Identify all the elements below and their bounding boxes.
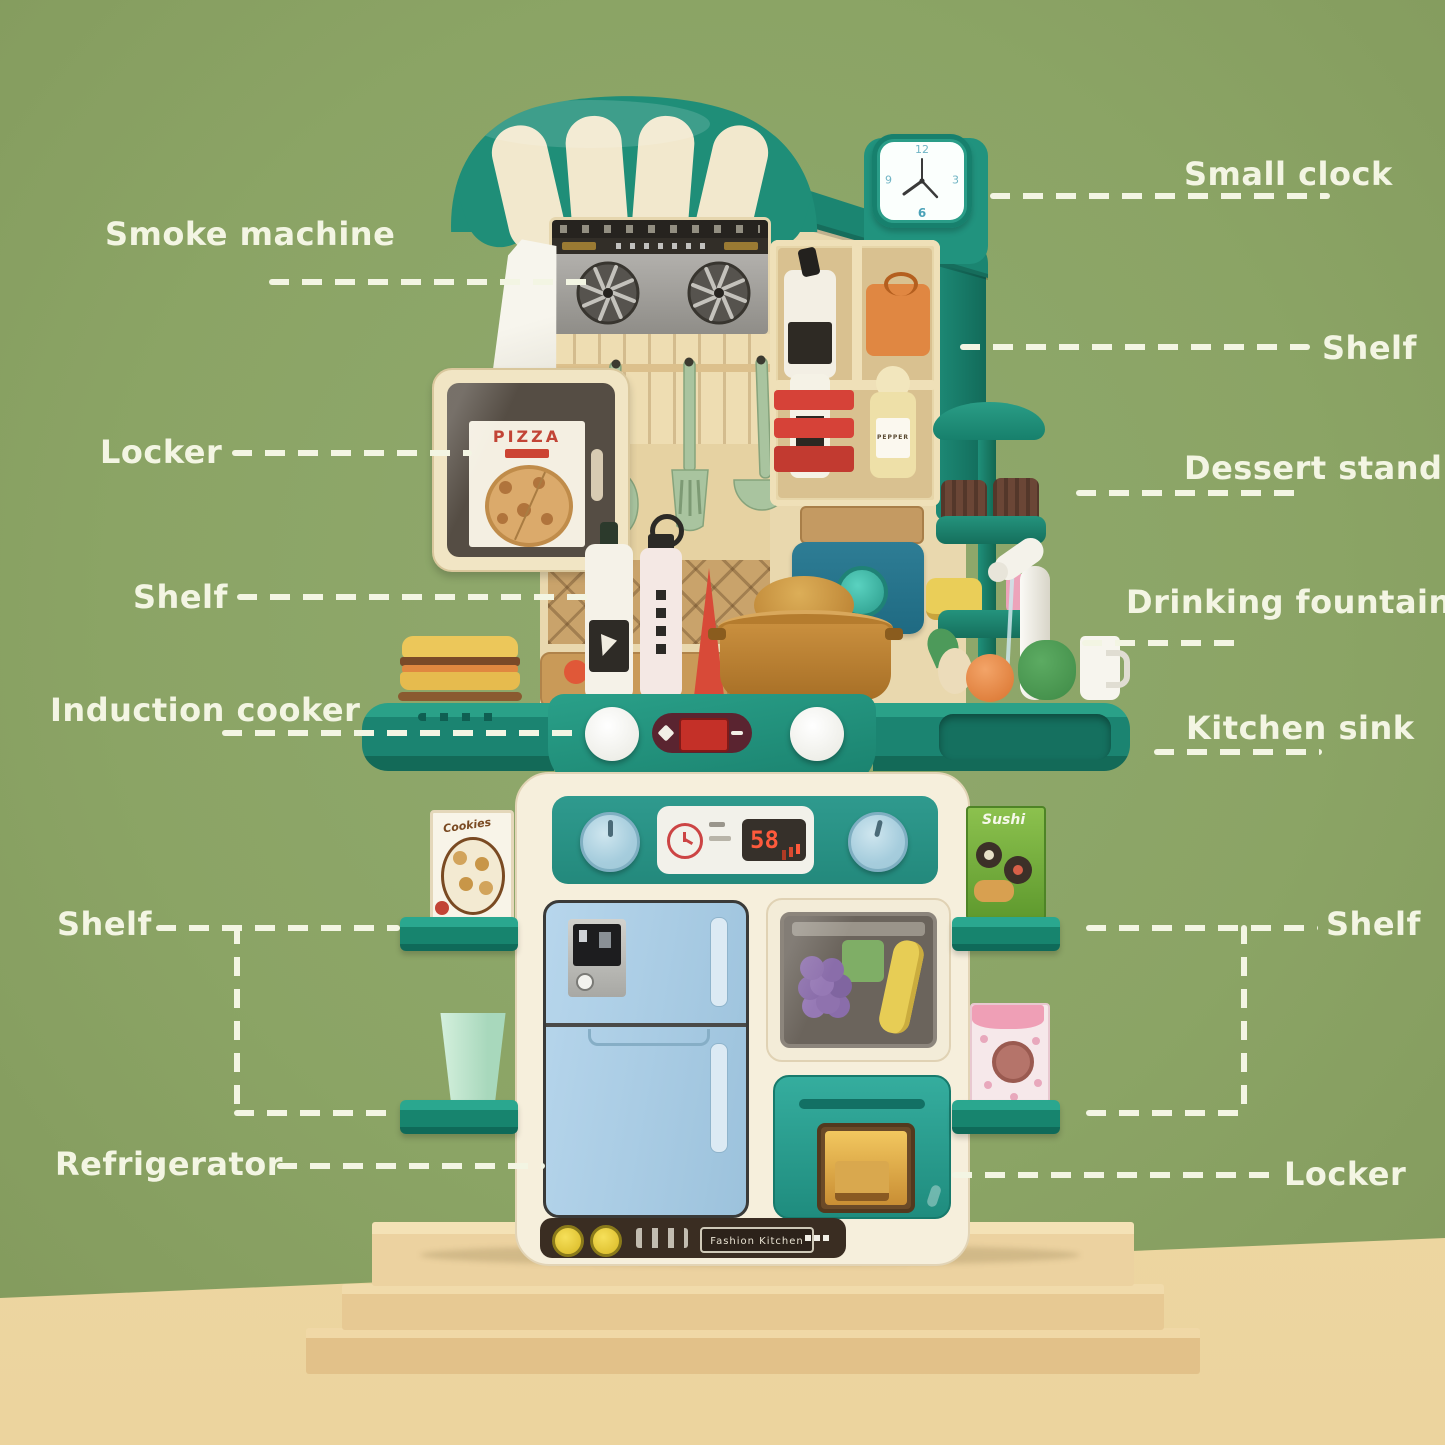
clock-hands: [880, 142, 964, 220]
leader-dessert-stand: [1076, 490, 1304, 496]
label-smoke-machine: Smoke machine: [105, 216, 395, 253]
fountain-nozzle: [988, 562, 1008, 582]
menu-dots: [814, 1235, 820, 1241]
leader-induction-cooker: [222, 730, 584, 736]
leader-kitchen-sink: [1154, 749, 1322, 755]
toy-sandwich: [398, 634, 522, 704]
spatula-handle: [684, 360, 695, 472]
right-shelf-upper: [952, 917, 1060, 951]
fruit-window-cabinet: [766, 898, 951, 1062]
stove-knob-left: [585, 707, 639, 761]
yellow-button: [552, 1225, 584, 1257]
stand-pole: [978, 430, 996, 692]
leader-refrigerator: [277, 1163, 545, 1169]
toast-in-oven: [835, 1161, 889, 1201]
smoke-machine-hood: [552, 220, 768, 334]
pedestal-step-bottom: [306, 1328, 1200, 1374]
leader-shelf-bottom-right-h2: [1086, 1110, 1247, 1116]
fridge-door-split: [546, 1023, 746, 1027]
refrigerator: [543, 900, 749, 1218]
control-center-panel: 58: [657, 806, 814, 874]
sushi-card-title: Sushi: [982, 812, 1025, 828]
sushi-card: Sushi: [966, 806, 1046, 920]
label-shelf-mid-left: Shelf: [133, 579, 228, 616]
orange-bag: [866, 284, 930, 356]
shelf-divider-v: [852, 244, 862, 384]
clock-face: 12 3 6 9: [880, 142, 964, 220]
pink-snack-box: [970, 1003, 1050, 1105]
fridge-control-panel: [568, 919, 626, 997]
sink-basin: [939, 714, 1111, 760]
oil-bottle: [784, 270, 836, 378]
fridge-handle-top: [710, 917, 728, 1007]
hood-control-bar: [552, 238, 768, 254]
leader-shelf-mid-left: [237, 594, 588, 600]
leader-small-clock: [990, 193, 1330, 199]
label-drinking-fountain: Drinking fountain: [1126, 584, 1445, 621]
label-locker-left: Locker: [100, 434, 222, 471]
hood-fans: [552, 254, 768, 334]
wall-cabinet-small: [800, 506, 924, 544]
cookies-card-title: Cookies: [442, 816, 492, 836]
label-induction-cooker: Induction cooker: [50, 692, 360, 729]
product-infographic: 12 3 6 9: [0, 0, 1445, 1445]
control-knob-left: [580, 812, 640, 872]
pepper-bottle: PEPPER: [868, 366, 918, 478]
pedestal-step-middle: [342, 1284, 1164, 1330]
left-shelf-lower: [400, 1100, 518, 1134]
oven-control-bar: 58: [552, 796, 938, 884]
timer-clock-icon: [667, 823, 703, 859]
left-shelf-upper: [400, 917, 518, 951]
hood-fan-panel: [552, 254, 768, 334]
red-basket-bar: [774, 418, 854, 438]
leader-shelf-bottom-left-h2: [234, 1110, 398, 1116]
leader-smoke-machine: [269, 279, 592, 285]
locker-glass-glare: [447, 383, 615, 557]
control-knob-right: [848, 812, 908, 872]
sauce-bottle-pink: [640, 528, 682, 698]
window-glass: [780, 912, 937, 1048]
stove-display: [652, 713, 752, 753]
label-refrigerator: Refrigerator: [55, 1146, 283, 1183]
label-kitchen-sink: Kitchen sink: [1186, 710, 1415, 747]
label-locker-bottom-right: Locker: [1284, 1156, 1406, 1193]
counter-right-wing-kitchen-sink: [873, 703, 1130, 771]
leader-shelf-bottom-left-h1: [156, 925, 400, 931]
label-shelf-bottom-left: Shelf: [57, 906, 152, 943]
red-basket: [774, 390, 854, 410]
yellow-button: [590, 1225, 622, 1257]
label-shelf-bottom-right: Shelf: [1326, 906, 1421, 943]
leader-shelf-top-right: [960, 344, 1310, 350]
leader-shelf-bottom-right-v: [1241, 925, 1247, 1116]
leader-locker-left: [232, 450, 472, 456]
timer-digits: 58: [750, 826, 779, 854]
oven-window: [817, 1123, 915, 1213]
window-glare: [784, 916, 933, 1044]
small-clock: 12 3 6 9: [872, 134, 972, 228]
sauce-bottle-white: [585, 540, 633, 700]
brand-plate: Fashion Kitchen: [700, 1227, 814, 1253]
cooking-pot: [718, 576, 893, 702]
bottom-button-strip: Fashion Kitchen: [540, 1218, 846, 1258]
oven-handle-groove: [799, 1099, 925, 1109]
leader-shelf-bottom-right-h1: [1086, 925, 1318, 931]
leader-shelf-bottom-left-v: [234, 925, 240, 1116]
timer-display: 58: [742, 819, 806, 861]
leader-drinking-fountain: [1082, 640, 1238, 646]
right-shelf-lower: [952, 1100, 1060, 1134]
red-basket-bar: [774, 446, 854, 472]
label-small-clock: Small clock: [1184, 156, 1393, 193]
fridge-handle-bottom: [710, 1043, 728, 1153]
leader-locker-bottom-right: [952, 1172, 1272, 1178]
ladle-handle: [756, 358, 771, 478]
counter-left-wing: [362, 703, 554, 771]
locker-window: PIZZA: [447, 383, 615, 557]
hood-icon-bar: [552, 220, 768, 238]
label-shelf-top-right: Shelf: [1322, 330, 1417, 367]
fridge-vent: [588, 1029, 710, 1046]
label-dessert-stand: Dessert stand: [1184, 450, 1442, 487]
toy-tomato: [966, 654, 1014, 702]
stove-knob-right: [790, 707, 844, 761]
cookies-card: Cookies: [430, 810, 514, 924]
pepper-label: PEPPER: [877, 434, 909, 441]
upper-shelf-unit: PEPPER: [770, 240, 940, 506]
toy-broccoli: [1018, 640, 1076, 700]
brand-label: Fashion Kitchen: [710, 1236, 804, 1247]
oven-locker: [773, 1075, 951, 1219]
icon-dots: [636, 1228, 688, 1248]
